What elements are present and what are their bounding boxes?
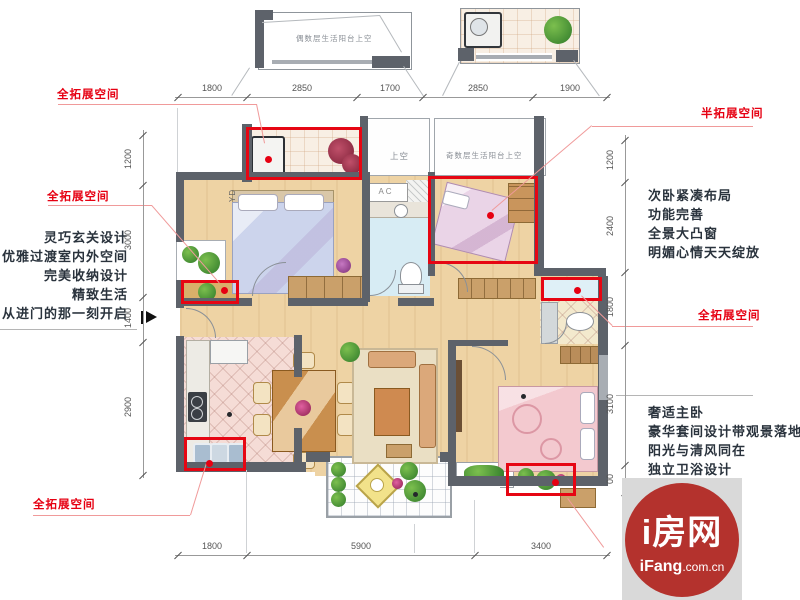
wall — [176, 336, 184, 470]
void-label: 上空 — [390, 150, 409, 162]
dim-tick — [174, 552, 182, 560]
balcony-wall-post — [372, 56, 410, 68]
dim-tick — [139, 472, 147, 480]
label-full-extension-bottom-left: 全拓展空间 — [33, 496, 96, 512]
toilet-tank — [398, 284, 424, 294]
extension-line — [414, 524, 415, 553]
chair — [253, 414, 271, 436]
entry-feature-text: 灵巧玄关设计优雅过渡室内外空间完美收纳设计精致生活从进门的那一刻开启 — [0, 228, 128, 323]
wall — [288, 298, 368, 306]
wall — [362, 172, 370, 302]
label-full-extension-mid-left: 全拓展空间 — [47, 188, 110, 204]
dim-tick — [603, 94, 611, 102]
ifang-logo: i房网 iFang.com.cn — [625, 483, 739, 597]
dim-tick — [243, 552, 251, 560]
dim-tick — [139, 182, 147, 190]
label-full-extension-mid-right: 全拓展空间 — [698, 307, 761, 323]
master-bedroom-feature-text: 奢适主卧豪华套间设计带观景落地窗阳光与清风同在独立卫浴设计 — [648, 403, 798, 479]
balcony-window-sill — [272, 58, 372, 66]
red-leader-line — [612, 326, 753, 327]
sink-icon — [394, 204, 408, 218]
dim-tick — [353, 94, 361, 102]
projection-line — [442, 62, 460, 96]
plant-icon — [331, 462, 346, 477]
red-leader-line — [48, 205, 152, 206]
entrance-arrow-icon — [146, 311, 157, 323]
balcony-wall-post — [255, 10, 264, 68]
plant-icon — [182, 246, 199, 263]
plant-icon — [331, 477, 346, 492]
highlight-bay-window-right — [541, 277, 602, 301]
dim-label-left: 2900 — [123, 387, 133, 427]
logo-domain-suffix: .com.cn — [682, 560, 724, 574]
plant-icon — [331, 492, 346, 507]
feature-text-line: 豪华套间设计带观景落地窗 — [648, 422, 798, 441]
burner — [191, 396, 203, 408]
duvet-swirl — [512, 404, 542, 434]
label-half-extension-top-right: 半拓展空间 — [701, 105, 764, 121]
feature-text-line: 次卧紧凑布局 — [648, 186, 778, 205]
feature-text-line: 明媚心情天天绽放 — [648, 243, 778, 262]
dim-baseline-left — [143, 130, 144, 478]
red-leader-line — [592, 126, 753, 127]
dim-label-right: 1200 — [605, 140, 615, 180]
dim-tick — [174, 94, 182, 102]
cactus-icon — [404, 480, 426, 502]
gray-leader-line — [0, 329, 137, 330]
gray-leader-line — [616, 395, 753, 396]
dim-baseline-top — [175, 97, 610, 98]
wall — [294, 335, 302, 377]
lantern-center — [370, 478, 384, 492]
plant-icon — [198, 252, 220, 274]
wall — [398, 298, 434, 306]
highlight-kitchen-sink — [184, 437, 246, 471]
void-area — [366, 118, 430, 176]
pillow — [284, 194, 324, 211]
dim-label-right: 2400 — [605, 206, 615, 246]
pillow — [238, 194, 278, 211]
wall — [440, 452, 454, 462]
toilet-icon — [566, 312, 594, 331]
dim-label-top: 1900 — [550, 83, 590, 93]
label-full-extension-top-left: 全拓展空间 — [57, 86, 120, 102]
plant-icon — [544, 16, 572, 44]
balcony-wall-post — [458, 48, 474, 61]
red-leader-line — [58, 104, 257, 105]
wall — [294, 428, 302, 468]
highlight-planter-bottom — [506, 463, 576, 496]
highlight-second-bedroom — [428, 176, 538, 264]
coffee-table — [374, 388, 410, 436]
yd-label: YD — [228, 189, 237, 202]
wall — [176, 172, 184, 242]
bg-patch — [452, 486, 500, 536]
fridge-icon — [210, 340, 248, 364]
pillow — [580, 428, 595, 460]
entrance-arrow-bar — [141, 311, 144, 324]
feature-text-line: 全景大凸窗 — [648, 224, 778, 243]
window-in-wall — [599, 355, 608, 400]
logo-domain-bold: iFang — [640, 558, 683, 575]
dim-label-top: 1800 — [192, 83, 232, 93]
cactus-icon — [400, 462, 418, 480]
wall — [452, 340, 508, 346]
dim-label-top: 2850 — [458, 83, 498, 93]
stool-icon — [336, 258, 351, 273]
balcony-wall-post — [556, 50, 578, 62]
odd-floor-balcony-label: 奇数层生活阳台上空 — [446, 150, 523, 161]
dim-tick — [621, 269, 629, 277]
washer-door-icon — [470, 18, 488, 36]
duvet-swirl — [540, 438, 562, 460]
dim-label-bottom: 1800 — [192, 541, 232, 551]
dim-baseline-bottom — [175, 555, 610, 556]
odd-floor-balcony-void — [434, 118, 546, 176]
dim-tick — [621, 462, 629, 470]
feature-text-line: 阳光与清风同在 — [648, 441, 798, 460]
highlight-service-balcony — [246, 127, 362, 180]
highlight-planter-left — [181, 280, 239, 304]
dim-tick — [471, 552, 479, 560]
dim-tick — [243, 94, 251, 102]
dim-label-bottom: 5900 — [341, 541, 381, 551]
dim-label-top: 1700 — [370, 83, 410, 93]
projection-line — [573, 60, 600, 97]
dim-tick — [621, 137, 629, 145]
sofa — [368, 351, 416, 368]
feature-text-line: 从进门的那一刻开启 — [0, 304, 128, 323]
dim-tick — [139, 294, 147, 302]
flower-icon — [392, 478, 403, 489]
closet — [560, 346, 600, 364]
table-flowers-icon — [295, 400, 311, 416]
floorplan-page: 偶数层生活阳台上空 上空 奇数层生活阳台上空 AC — [0, 0, 800, 600]
wall — [306, 452, 330, 462]
dim-tick — [139, 339, 147, 347]
chair — [253, 382, 271, 404]
feature-text-line: 独立卫浴设计 — [648, 460, 798, 479]
feature-text-line: 功能完善 — [648, 205, 778, 224]
balcony-window-sill — [476, 53, 552, 61]
extension-line — [177, 108, 178, 172]
dim-label-top: 2850 — [282, 83, 322, 93]
pillow — [580, 392, 595, 424]
ottoman — [386, 444, 412, 458]
dim-label-left: 1200 — [123, 139, 133, 179]
sofa — [419, 364, 436, 448]
feature-text-line: 完美收纳设计 — [0, 266, 128, 285]
hallway-closet — [458, 278, 536, 299]
even-floor-balcony-label: 偶数层生活阳台上空 — [296, 33, 373, 44]
dim-label-bottom: 3400 — [521, 541, 561, 551]
dim-baseline-right — [625, 135, 626, 492]
logo-brand-text: i房网 — [625, 505, 739, 554]
ac-label-box: AC — [364, 183, 408, 202]
second-bedroom-feature-text: 次卧紧凑布局功能完善全景大凸窗明媚心情天天绽放 — [648, 186, 778, 262]
burner — [191, 408, 203, 420]
dim-tick — [621, 342, 629, 350]
wall — [534, 268, 606, 276]
dim-tick — [603, 552, 611, 560]
feature-text-line: 精致生活 — [0, 285, 128, 304]
dim-tick — [529, 94, 537, 102]
bg-patch — [150, 472, 315, 542]
feature-text-line: 优雅过渡室内外空间 — [0, 247, 128, 266]
feature-text-line: 奢适主卧 — [648, 403, 798, 422]
ac-platform-hatch — [406, 180, 430, 202]
dim-tick — [419, 94, 427, 102]
wardrobe — [288, 276, 364, 300]
dim-tick — [621, 179, 629, 187]
feature-text-line: 灵巧玄关设计 — [0, 228, 128, 247]
dim-tick — [139, 132, 147, 140]
projection-line — [403, 66, 424, 97]
plant-icon — [340, 342, 360, 362]
projection-line — [231, 67, 250, 96]
logo-domain-text: iFang.com.cn — [625, 558, 739, 576]
